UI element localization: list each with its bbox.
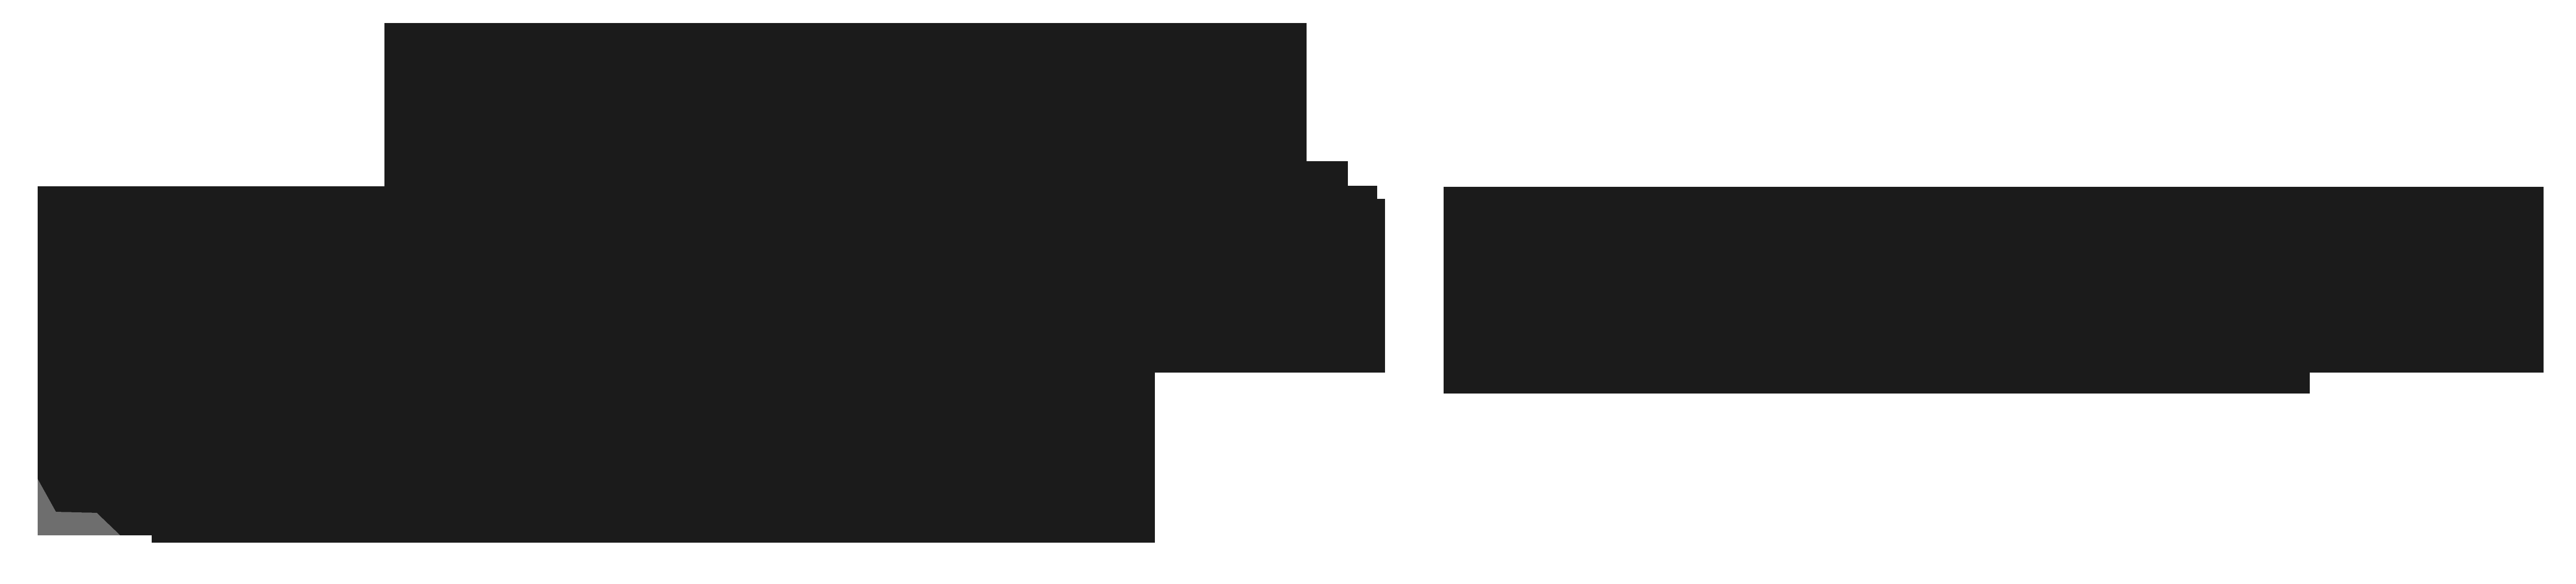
magnified-screenshot-canvas — [0, 0, 2576, 584]
magnified-glyph-shapes — [0, 0, 2576, 584]
magnified-dark-shape-right — [1444, 187, 2544, 394]
magnified-dark-shape-left — [38, 23, 1385, 543]
